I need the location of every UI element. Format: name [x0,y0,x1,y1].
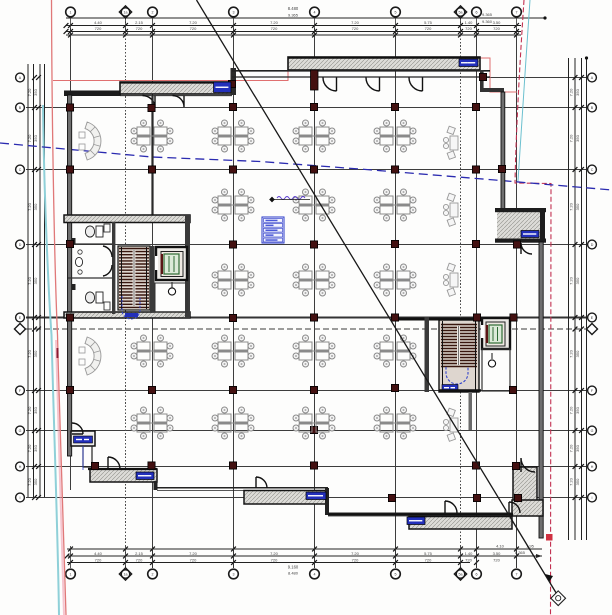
svg-text:350: 350 [33,277,38,284]
svg-text:C: C [591,168,594,172]
svg-text:720: 720 [465,557,472,562]
svg-text:C: C [19,168,22,172]
svg-text:350: 350 [575,406,580,413]
svg-text:7.20: 7.20 [27,276,32,285]
svg-text:9.160: 9.160 [288,565,299,570]
svg-text:7.20: 7.20 [27,477,32,486]
svg-text:I: I [592,496,593,500]
svg-text:7.20: 7.20 [27,444,32,453]
svg-text:9.365: 9.365 [482,12,493,17]
svg-text:7.20: 7.20 [27,88,32,97]
svg-text:720: 720 [352,557,359,562]
svg-text:7: 7 [516,10,518,14]
svg-text:3: 3 [233,572,235,576]
svg-text:7.20: 7.20 [27,349,32,358]
svg-text:7.20: 7.20 [569,202,574,211]
svg-text:720: 720 [190,26,197,31]
svg-text:350: 350 [33,444,38,451]
svg-text:6: 6 [476,10,478,14]
svg-text:5a: 5a [459,10,463,14]
svg-text:3: 3 [233,10,235,14]
svg-text:5.75: 5.75 [424,551,433,556]
svg-text:7.20: 7.20 [351,20,360,25]
svg-text:8.480: 8.480 [288,571,299,576]
svg-text:350: 350 [575,277,580,284]
svg-text:I: I [20,496,21,500]
svg-text:7.20: 7.20 [569,444,574,453]
svg-text:5: 5 [395,572,397,576]
svg-text:350: 350 [575,478,580,485]
svg-text:720: 720 [190,557,197,562]
svg-text:7.20: 7.20 [270,551,279,556]
svg-text:720: 720 [136,26,143,31]
svg-text:7.20: 7.20 [189,20,198,25]
svg-text:7.20: 7.20 [569,276,574,285]
svg-text:7.20: 7.20 [569,88,574,97]
svg-text:G: G [19,429,22,433]
svg-text:7.20: 7.20 [569,134,574,143]
svg-text:3.50: 3.50 [493,551,502,556]
svg-text:4.40: 4.40 [94,20,103,25]
svg-text:1: 1 [70,10,72,14]
svg-text:D: D [591,243,594,247]
svg-text:720: 720 [136,557,143,562]
svg-text:2: 2 [152,10,154,14]
svg-text:8.480: 8.480 [288,6,299,11]
svg-text:1a: 1a [124,10,128,14]
svg-text:350: 350 [33,406,38,413]
svg-text:7.20: 7.20 [569,477,574,486]
svg-text:2: 2 [152,572,154,576]
svg-text:7: 7 [516,572,518,576]
svg-text:7.20: 7.20 [569,349,574,358]
svg-text:1.40: 1.40 [465,20,474,25]
svg-text:720: 720 [465,26,472,31]
svg-text:720: 720 [95,557,102,562]
svg-text:350: 350 [575,350,580,357]
svg-text:5a: 5a [459,572,463,576]
svg-text:4.40: 4.40 [94,551,103,556]
svg-text:5.75: 5.75 [424,20,433,25]
svg-text:1: 1 [70,572,72,576]
svg-text:D: D [19,243,22,247]
svg-text:1.40: 1.40 [465,551,474,556]
svg-text:4: 4 [314,10,316,14]
svg-text:G: G [591,429,594,433]
svg-text:3.50: 3.50 [493,20,502,25]
svg-text:350: 350 [33,350,38,357]
svg-text:350: 350 [575,444,580,451]
svg-text:720: 720 [493,26,500,31]
svg-text:350: 350 [575,134,580,141]
svg-text:720: 720 [271,557,278,562]
svg-text:2.15: 2.15 [135,20,144,25]
svg-text:7.20: 7.20 [27,202,32,211]
svg-text:7.20: 7.20 [27,406,32,415]
svg-text:H: H [19,465,22,469]
svg-text:350: 350 [33,478,38,485]
svg-text:7.20: 7.20 [270,20,279,25]
svg-text:350: 350 [575,88,580,95]
svg-text:5: 5 [395,10,397,14]
svg-text:350: 350 [33,88,38,95]
svg-text:H: H [591,465,594,469]
svg-text:7.20: 7.20 [351,551,360,556]
svg-text:4.10: 4.10 [496,544,505,549]
svg-text:9.365: 9.365 [288,13,299,18]
svg-text:7.20: 7.20 [569,406,574,415]
svg-text:720: 720 [493,557,500,562]
svg-text:720: 720 [352,26,359,31]
svg-text:350: 350 [575,203,580,210]
svg-text:4: 4 [314,572,316,576]
svg-text:350: 350 [33,134,38,141]
svg-text:7.20: 7.20 [27,134,32,143]
svg-text:9.360: 9.360 [482,19,493,24]
svg-text:720: 720 [271,26,278,31]
svg-text:720: 720 [95,26,102,31]
svg-text:720: 720 [425,26,432,31]
svg-text:350: 350 [33,203,38,210]
svg-text:720: 720 [425,557,432,562]
svg-text:6: 6 [476,572,478,576]
svg-text:7.20: 7.20 [189,551,198,556]
svg-text:2.15: 2.15 [135,551,144,556]
svg-text:1a: 1a [124,572,128,576]
